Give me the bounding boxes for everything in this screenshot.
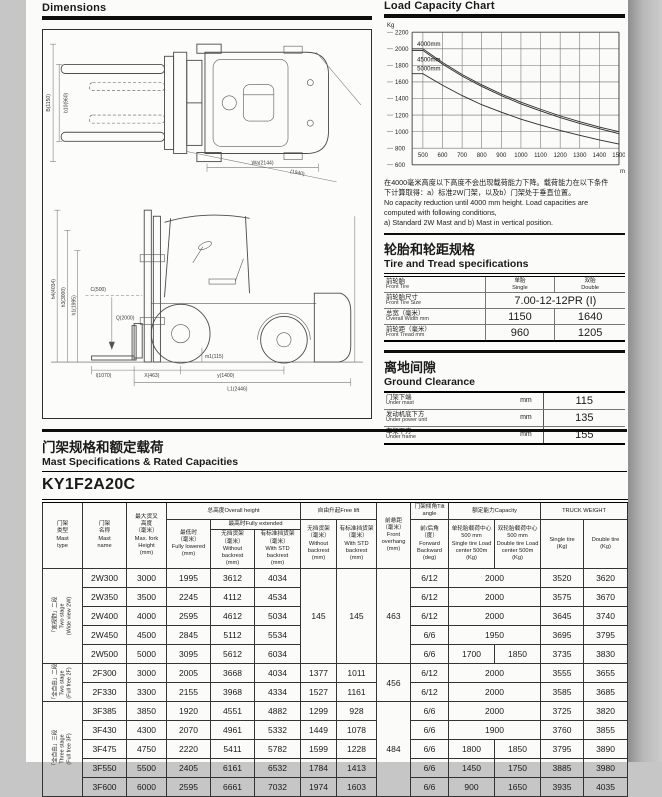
col-truck-weight: TRUCK WEIGHT [541,501,628,520]
svg-text:800: 800 [395,146,406,152]
capacity: 2000 [449,664,541,683]
mast-name: 2W350 [83,588,127,607]
front-tread-double: 1205 [555,325,625,341]
tilt-angle: 6/12 [411,569,449,588]
mast-name: 3F475 [83,740,127,759]
svg-text:1600: 1600 [395,80,409,86]
svg-text:600: 600 [395,163,406,169]
clearance-value: 135 [543,409,625,426]
front-overhang: 484 [377,702,411,797]
mast-section: 门架规格和额定载荷 Mast Specifications & Rated Ca… [42,427,627,797]
free-lift-without: 1599 [301,740,337,759]
svg-text:1400: 1400 [593,153,607,159]
extended-without-backrest: 3968 [211,683,255,702]
max-fork-height: 5500 [127,759,167,778]
extended-with-backrest: 5034 [255,607,301,626]
tilt-angle: 6/6 [411,721,449,740]
fully-lowered: 1995 [167,569,211,588]
table-row: 前轮胎 Front Tire 单胎 Single 双胎 Double [384,275,625,292]
model-code: KY1F2A20C [42,476,627,494]
free-lift-with: 1011 [337,664,377,683]
extended-with-backrest: 5534 [255,626,301,645]
extended-with-backrest: 4534 [255,588,301,607]
unit: mm [509,409,543,426]
mast-name: 3F550 [83,759,127,778]
row-label: 前轮距（毫米） Front Tread mm [384,325,485,341]
dim-label-load-center: C(500) [91,287,107,293]
capacity-single: 1450 [449,759,495,778]
col-free-lift: 自由升起Free lift [301,501,377,520]
forklift-side-view-drawing: h4(4034) h3(3000) h1(1995) Q(2000) C(500… [45,196,369,394]
extended-without-backrest: 3612 [211,569,255,588]
clearance-value: 115 [543,392,625,409]
label-en: Front Tire Size [386,301,483,307]
svg-text:mm: mm [620,169,625,175]
capacity-double: 1850 [495,740,541,759]
capacity-curve-5000mm [412,74,619,144]
free-lift-with: 1078 [337,721,377,740]
extended-with-backrest: 4334 [255,683,301,702]
label-en: Front Tread mm [386,333,483,339]
label-en: Under power unit [386,418,507,424]
truck-weight-single: 3555 [541,664,584,683]
row-label: 总宽（毫米） Overall Width mm [384,309,485,325]
row-label: 前轮胎尺寸 Front Tire Size [384,293,485,309]
col-weight-single: Single tire (Kg) [541,520,584,569]
load-capacity-chart: 6008001000120014001600180020002200500600… [384,22,625,175]
capacity: 2000 [449,569,541,588]
note-line: computed with following conditions, [384,208,625,218]
svg-text:1800: 1800 [395,64,409,70]
svg-text:1000: 1000 [395,130,409,136]
truck-weight-single: 3885 [541,759,584,778]
mast-title-en: Mast Specifications & Rated Capacities [42,456,627,468]
svg-text:1100: 1100 [534,153,548,159]
truck-weight-single: 3735 [541,645,584,664]
col-fully-lowered: 最低时 （毫米） Fully lowered (mm) [167,520,211,569]
capacity-double: 1750 [495,759,541,778]
svg-text:600: 600 [437,153,448,159]
front-tread-single: 960 [485,325,554,341]
truck-weight-single: 3585 [541,683,584,702]
svg-text:1200: 1200 [395,113,409,119]
truck-weight-double: 3670 [584,588,628,607]
tire-title-en: Tire and Tread specifications [384,258,625,270]
capacity-curve-4000mm [412,49,619,132]
dim-label-length: L1(2446) [227,386,248,392]
extended-with-backrest: 5332 [255,721,301,740]
extended-without-backrest: 4112 [211,588,255,607]
dim-label-h3: h3(3000) [61,287,67,308]
max-fork-height: 3300 [127,683,167,702]
extended-without-backrest: 5112 [211,626,255,645]
col-fully-extended: 最高时Fully extended [211,520,301,530]
max-fork-height: 3000 [127,569,167,588]
tilt-angle: 6/12 [411,664,449,683]
mast-type-label: 「全自由」三段 Three stage (Full free 3F) [52,730,73,769]
right-column: Load Capacity Chart 60080010001200140016… [384,0,625,445]
mast-spec-table: 门架 类型 Mast type 门架 名称 Mast name 最大货叉 高度 … [42,499,628,797]
mast-type-cell: 「全自由」二段 Two stage (Full free 2F) [43,664,83,702]
fully-lowered: 2405 [167,759,211,778]
truck-weight-double: 3890 [584,740,628,759]
extended-with-backrest: 5782 [255,740,301,759]
series-label: 4000mm [417,42,440,48]
row-label: 发动机底下方 Under power unit [384,409,509,426]
extended-without-backrest: 3668 [211,664,255,683]
mast-title-cn: 门架规格和额定载荷 [42,436,627,456]
col-capacity: 额定能力Capacity [449,501,541,520]
svg-text:1200: 1200 [553,153,567,159]
ground-title-en: Ground Clearance [384,376,625,388]
tilt-angle: 6/6 [411,740,449,759]
max-fork-height: 3000 [127,664,167,683]
free-lift-with: 928 [337,702,377,721]
front-overhang: 463 [377,569,411,664]
max-fork-height: 3850 [127,702,167,721]
capacity-single: 900 [449,778,495,797]
max-fork-height: 4300 [127,721,167,740]
table-row: 前轮胎尺寸 Front Tire Size 7.00-12-12PR (I) [384,293,625,309]
max-fork-height: 3500 [127,588,167,607]
col-cap-single: 单轮胎载荷中心 500 mm Single tire Load center 5… [449,520,495,569]
col-weight-double: Double tire (Kg) [584,520,628,569]
truck-weight-double: 3655 [584,664,628,683]
col-front-overhang: 前悬距 （毫米） Front overhang (mm) [377,501,411,569]
dim-label-clearance: m1(115) [205,354,224,360]
max-fork-height: 6000 [127,778,167,797]
svg-text:1400: 1400 [395,97,409,103]
truck-weight-single: 3520 [541,569,584,588]
free-lift-with: 1161 [337,683,377,702]
overall-width-double: 1640 [555,309,625,325]
max-fork-height: 4750 [127,740,167,759]
ground-title-cn: 离地间隙 [384,357,625,376]
col-header-single: 单胎 Single [485,275,554,292]
svg-text:900: 900 [496,153,507,159]
truck-weight-double: 4035 [584,778,628,797]
extended-with-backrest: 4034 [255,664,301,683]
table-row: 发动机底下方 Under power unit mm 135 [384,409,625,426]
capacity: 2000 [449,683,541,702]
fully-lowered: 1920 [167,702,211,721]
extended-without-backrest: 6161 [211,759,255,778]
table-row: 总宽（毫米） Overall Width mm 1150 1640 [384,309,625,325]
document-page: Dimensions [26,0,628,762]
mast-name: 2W500 [83,645,127,664]
section-rule [42,429,627,432]
note-line: a) Standard 2W Mast and b) Mast in verti… [384,218,625,228]
max-fork-height: 4000 [127,607,167,626]
capacity: 2000 [449,702,541,721]
free-lift-without: 1784 [301,759,337,778]
truck-weight-single: 3645 [541,607,584,626]
load-chart-title: Load Capacity Chart [384,0,625,12]
mast-name: 2W450 [83,626,127,645]
fully-lowered: 3095 [167,645,211,664]
forklift-top-view-drawing: B(1150) b10(960) Wa(2144) (1940) [45,32,369,184]
svg-text:2000: 2000 [395,47,409,53]
row-label: 门架下端 Under mast [384,392,509,409]
mast-name: 2W300 [83,569,127,588]
extended-with-backrest: 6532 [255,759,301,778]
truck-weight-double: 3980 [584,759,628,778]
dimensions-drawing-box: B(1150) b10(960) Wa(2144) (1940) [42,29,372,419]
truck-weight-double: 3685 [584,683,628,702]
free-lift-with: 1413 [337,759,377,778]
mast-name: 2F330 [83,683,127,702]
truck-weight-double: 3830 [584,645,628,664]
svg-text:500: 500 [418,153,429,159]
free-lift-without: 1974 [301,778,337,797]
note-line: 在4000毫米高度以下高度不会出现载荷能力下降。载荷能力在以下条件 [384,178,625,188]
tilt-angle: 6/6 [411,778,449,797]
free-lift-with: 1228 [337,740,377,759]
svg-text:Kg: Kg [387,23,394,29]
overall-width-single: 1150 [485,309,554,325]
truck-weight-double: 3740 [584,607,628,626]
max-fork-height: 5000 [127,645,167,664]
capacity: 1900 [449,721,541,740]
free-lift-with: 1603 [337,778,377,797]
extended-without-backrest: 4551 [211,702,255,721]
fully-lowered: 2220 [167,740,211,759]
truck-weight-single: 3695 [541,626,584,645]
fully-lowered: 2595 [167,778,211,797]
dim-label-wheelbase: y(1400) [217,373,234,379]
truck-weight-single: 3725 [541,702,584,721]
col-freelift-without: 无挡货架 （毫米） Without backrest (mm) [301,520,337,569]
tilt-angle: 6/12 [411,607,449,626]
section-rule [384,233,625,236]
series-label: 4500mm [417,57,440,63]
capacity-double: 1650 [495,778,541,797]
dim-label-radius: (1940) [290,169,306,178]
capacity-double: 1850 [495,645,541,664]
mast-name: 3F430 [83,721,127,740]
fully-lowered: 2155 [167,683,211,702]
free-lift-without: 1449 [301,721,337,740]
series-label: 5000mm [417,67,440,73]
mast-name: 2W400 [83,607,127,626]
truck-weight-double: 3795 [584,626,628,645]
fully-lowered: 2845 [167,626,211,645]
dim-label-fork: l(1070) [96,373,112,379]
chart-notes: 在4000毫米高度以下高度不会出现载荷能力下降。载荷能力在以下条件 下计算取得：… [384,178,625,228]
note-line: No capacity reduction until 4000 mm heig… [384,198,625,208]
extended-without-backrest: 4961 [211,721,255,740]
col-extended-with-std: 有标准挡货架 （毫米） With STD backrest (mm) [255,530,301,569]
capacity: 1950 [449,626,541,645]
truck-weight-single: 3935 [541,778,584,797]
capacity: 2000 [449,588,541,607]
mast-type-label: 「全自由」二段 Two stage (Full free 2F) [52,663,73,702]
extended-without-backrest: 5612 [211,645,255,664]
svg-text:800: 800 [477,153,488,159]
extended-without-backrest: 4612 [211,607,255,626]
tilt-angle: 6/12 [411,683,449,702]
truck-weight-double: 3820 [584,702,628,721]
table-row: 门架下端 Under mast mm 115 [384,392,625,409]
col-mast-name: 门架 名称 Mast name [83,501,127,569]
truck-weight-single: 3760 [541,721,584,740]
mast-name: 3F385 [83,702,127,721]
truck-weight-single: 3795 [541,740,584,759]
capacity: 2000 [449,607,541,626]
col-mast-type: 门架 类型 Mast type [43,501,83,569]
capacity-single: 1700 [449,645,495,664]
max-fork-height: 4500 [127,626,167,645]
free-lift-without: 1377 [301,664,337,683]
title-rule [42,16,372,20]
mast-name: 3F600 [83,778,127,797]
fully-lowered: 2005 [167,664,211,683]
col-cap-double: 双轮胎载荷中心 500 mm Double tire Load center 5… [495,520,541,569]
dimensions-title: Dimensions [42,2,372,14]
scanned-spec-page: { "dimensions": { "title": "Dimensions" … [0,0,662,762]
extended-with-backrest: 6034 [255,645,301,664]
mast-type-cell: 「全自由」三段 Three stage (Full free 3F) [43,702,83,797]
dim-label-overall-width: B(1150) [46,94,52,112]
mast-type-label: 「宽视野」二段 Two stage (Wide view 2W) [52,597,73,636]
tire-title-cn: 轮胎和轮距规格 [384,239,625,258]
section-rule [384,350,625,353]
dim-label-wa: Wa(2144) [252,161,274,167]
svg-text:700: 700 [457,153,468,159]
truck-weight-double: 3855 [584,721,628,740]
truck-weight-single: 3575 [541,588,584,607]
free-lift-without: 145 [301,569,337,664]
fully-lowered: 2070 [167,721,211,740]
col-overall-height: 总高度Overall height [167,501,301,520]
free-lift-without: 1299 [301,702,337,721]
col-max-height: 最大货叉 高度 （毫米） Max. fork Height (mm) [127,501,167,569]
dim-label-load: Q(2000) [116,315,135,321]
svg-text:2200: 2200 [395,30,409,36]
col-freelift-with-std: 有标准挡货架 （毫米） With STD backrest (mm) [337,520,377,569]
extended-with-backrest: 4034 [255,569,301,588]
tire-size-value: 7.00-12-12PR (I) [485,293,625,309]
title-rule [384,14,625,18]
svg-text:1000: 1000 [514,153,528,159]
extended-with-backrest: 7032 [255,778,301,797]
tilt-angle: 6/6 [411,645,449,664]
col-header-double: 双胎 Double [555,275,625,292]
dimensions-section: Dimensions [42,2,372,419]
mast-type-cell: 「宽视野」二段 Two stage (Wide view 2W) [43,569,83,664]
front-overhang: 456 [377,664,411,702]
mast-name: 2F300 [83,664,127,683]
dim-label-overhang: X(463) [144,373,159,379]
free-lift-with: 145 [337,569,377,664]
tilt-angle: 6/12 [411,588,449,607]
free-lift-without: 1527 [301,683,337,702]
row-label: 前轮胎 Front Tire [384,275,485,292]
label-en: Under mast [386,401,507,407]
tilt-angle: 6/6 [411,626,449,645]
col-tilt-fwd-bwd: 前/后角 （度） Forward Backward (deg) [411,520,449,569]
col-tilt-angle: 门架倾角Tilt angle [411,501,449,520]
dim-label-tread: b10(960) [63,92,69,113]
truck-weight-double: 3620 [584,569,628,588]
fully-lowered: 2245 [167,588,211,607]
tire-tread-table: 前轮胎 Front Tire 单胎 Single 双胎 Double 前轮胎尺寸… [384,273,625,342]
extended-without-backrest: 6661 [211,778,255,797]
extended-without-backrest: 5411 [211,740,255,759]
label-en: Front Tire [386,285,483,291]
unit: mm [509,392,543,409]
title-rule [42,471,627,473]
tilt-angle: 6/6 [411,759,449,778]
tilt-angle: 6/6 [411,702,449,721]
note-line: 下计算取得：a）标准2W门架，以及b）门架处于垂直位置。 [384,188,625,198]
scan-edge-shadow [628,0,662,762]
dim-label-h1: h1(1995) [71,295,77,316]
table-row: 前轮距（毫米） Front Tread mm 960 1205 [384,325,625,341]
extended-with-backrest: 4882 [255,702,301,721]
capacity-single: 1800 [449,740,495,759]
col-extended-without: 无挡货架 （毫米） Without backrest (mm) [211,530,255,569]
dim-label-h4: h4(4034) [51,279,57,300]
svg-text:1300: 1300 [573,153,587,159]
label-en: Overall Width mm [386,317,483,323]
fully-lowered: 2595 [167,607,211,626]
